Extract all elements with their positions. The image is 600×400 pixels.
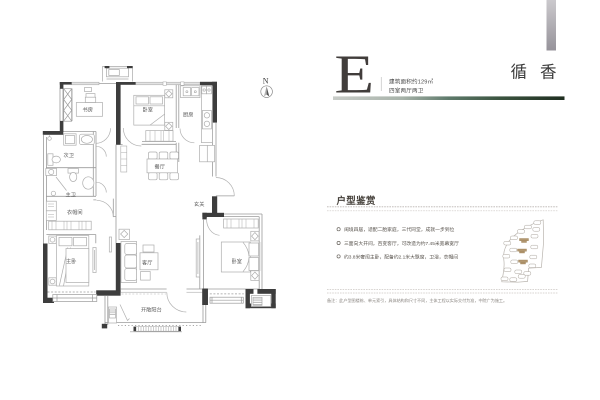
svg-text:厨房: 厨房 [183,111,193,119]
svg-text:玄关: 玄关 [194,200,204,208]
svg-text:次卫: 次卫 [64,151,74,159]
svg-text:餐厅: 餐厅 [155,163,165,171]
svg-text:主卧: 主卧 [66,257,76,265]
svg-text:建筑面积约129㎡: 建筑面积约129㎡ [389,78,434,86]
svg-text:客厅: 客厅 [142,259,152,267]
svg-text:户型鉴赏: 户型鉴赏 [336,195,376,207]
svg-text:循香: 循香 [511,63,570,82]
svg-text:N: N [263,77,269,86]
svg-text:主卫: 主卫 [66,191,76,199]
svg-text:三面向大开间，百变客厅，可改造为约7.45米宽幕宽厅: 三面向大开间，百变客厅，可改造为约7.45米宽幕宽厅 [344,240,459,247]
svg-text:开敞阳台: 开敞阳台 [141,306,162,314]
svg-text:阔境四居，适配二胎家庭，三代同堂，成就一步到位: 阔境四居，适配二胎家庭，三代同堂，成就一步到位 [344,226,455,233]
svg-text:四室两厅两卫: 四室两厅两卫 [389,86,424,94]
svg-text:备注：此户型图楼栋、单元索引，具体结构和尺寸不同，主体工程以: 备注：此户型图楼栋、单元索引，具体结构和尺寸不同，主体工程以实际交付为准，中院广… [327,297,507,303]
svg-text:书房: 书房 [83,106,93,114]
svg-text:卧室: 卧室 [143,106,153,114]
svg-text:衣帽间: 衣帽间 [67,208,83,216]
svg-text:E: E [334,44,374,106]
svg-text:约3.8米奢阔主卧，配备约2.1米大飘窗，卫浴，衣帽间: 约3.8米奢阔主卧，配备约2.1米大飘窗，卫浴，衣帽间 [344,253,458,260]
svg-text:卧室: 卧室 [232,257,242,265]
